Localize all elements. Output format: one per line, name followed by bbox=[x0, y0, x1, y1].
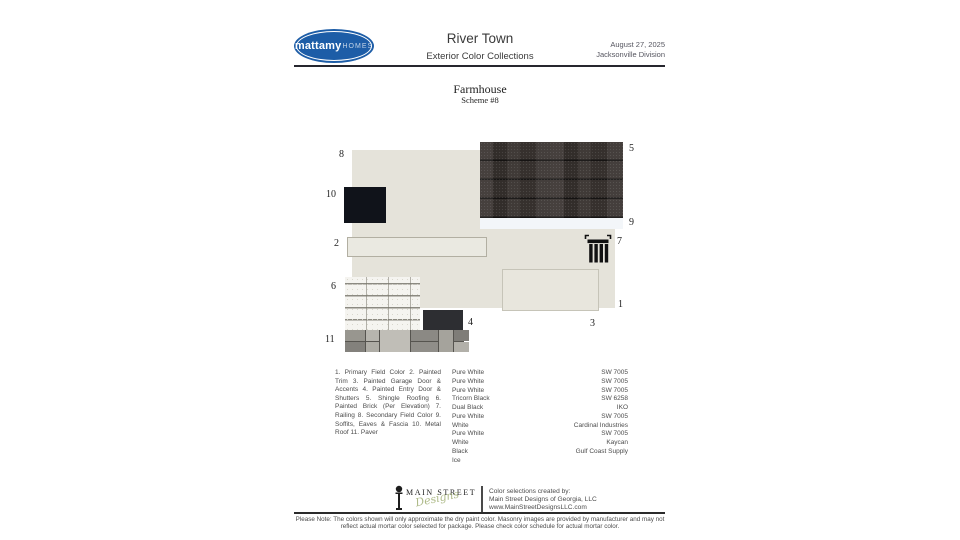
document-page: mattamy HOMES River Town Exterior Color … bbox=[0, 0, 960, 540]
footer-rule bbox=[294, 512, 665, 514]
swatch-garage-door bbox=[502, 269, 599, 311]
paver-block bbox=[454, 342, 469, 353]
swatch-11-label: 11 bbox=[325, 334, 335, 345]
swatch-paver bbox=[345, 330, 464, 352]
paver-block bbox=[411, 330, 438, 341]
legend-code: Gulf Coast Supply bbox=[460, 448, 628, 457]
legend-code: SW 7005 bbox=[460, 378, 628, 387]
swatch-3-label: 3 bbox=[590, 318, 595, 329]
swatch-1-label: 1 bbox=[618, 299, 623, 310]
swatch-shingle-roofing bbox=[480, 142, 623, 218]
swatch-9-label: 9 bbox=[629, 217, 634, 228]
swatch-5-label: 5 bbox=[629, 143, 634, 154]
legend-codes-column: SW 7005 SW 7005 SW 7005 SW 6258 IKO SW 7… bbox=[460, 369, 628, 465]
swatch-4-label: 4 bbox=[468, 317, 473, 328]
swatch-7-label: 7 bbox=[617, 236, 622, 247]
swatch-8-label: 8 bbox=[339, 149, 344, 160]
swatch-entry-door bbox=[423, 310, 463, 331]
swatch-metal-roof bbox=[344, 187, 386, 223]
credit-intro: Color selections created by: bbox=[489, 488, 597, 496]
logo-brand-text: mattamy bbox=[295, 40, 342, 52]
legend-code: IKO bbox=[460, 404, 628, 413]
legend-code: SW 7005 bbox=[460, 369, 628, 378]
logo-brand-suffix: HOMES bbox=[343, 43, 374, 50]
swatch-soffits-eaves-fascia bbox=[480, 218, 623, 229]
legend-code: Kaycan bbox=[460, 439, 628, 448]
legend-code bbox=[460, 457, 628, 466]
legend-code: SW 7005 bbox=[460, 413, 628, 422]
header-meta: August 27, 2025 Jacksonville Division bbox=[545, 40, 665, 60]
footer-divider bbox=[481, 486, 483, 512]
swatch-2-label: 2 bbox=[334, 238, 339, 249]
legend-code: SW 6258 bbox=[460, 395, 628, 404]
paver-block bbox=[345, 330, 365, 341]
paver-block bbox=[439, 330, 453, 352]
division-text: Jacksonville Division bbox=[545, 50, 665, 60]
credit-website: www.MainStreetDesignsLLC.com bbox=[489, 504, 597, 512]
header-rule bbox=[294, 65, 665, 67]
paver-block bbox=[380, 330, 410, 352]
disclaimer-note: Please Note: The colors shown will only … bbox=[295, 516, 665, 530]
paver-block bbox=[454, 330, 469, 341]
paver-block bbox=[366, 342, 379, 353]
mainstreet-designs-logo: MAIN STREET Designs bbox=[393, 485, 479, 512]
logo-inner-ring: mattamy HOMES bbox=[296, 31, 372, 61]
swatch-painted-trim bbox=[347, 237, 487, 257]
legend-code: SW 7005 bbox=[460, 387, 628, 396]
legend-code: Cardinal Industries bbox=[460, 422, 628, 431]
swatch-painted-brick bbox=[345, 277, 420, 331]
legend-code: SW 7005 bbox=[460, 430, 628, 439]
lamppost-icon bbox=[393, 485, 405, 512]
paver-block bbox=[366, 330, 379, 341]
date-text: August 27, 2025 bbox=[545, 40, 665, 50]
legend-items-paragraph: 1. Primary Field Color 2. Painted Trim 3… bbox=[335, 369, 441, 438]
swatch-10-label: 10 bbox=[326, 189, 336, 200]
credit-company: Main Street Designs of Georgia, LLC bbox=[489, 496, 597, 504]
scheme-number: Scheme #8 bbox=[380, 95, 580, 105]
credit-block: Color selections created by: Main Street… bbox=[489, 488, 597, 512]
swatch-6-label: 6 bbox=[331, 281, 336, 292]
paver-block bbox=[411, 342, 438, 353]
mattamy-homes-logo: mattamy HOMES bbox=[294, 29, 374, 63]
railing-icon bbox=[584, 234, 612, 265]
paver-block bbox=[345, 342, 365, 353]
